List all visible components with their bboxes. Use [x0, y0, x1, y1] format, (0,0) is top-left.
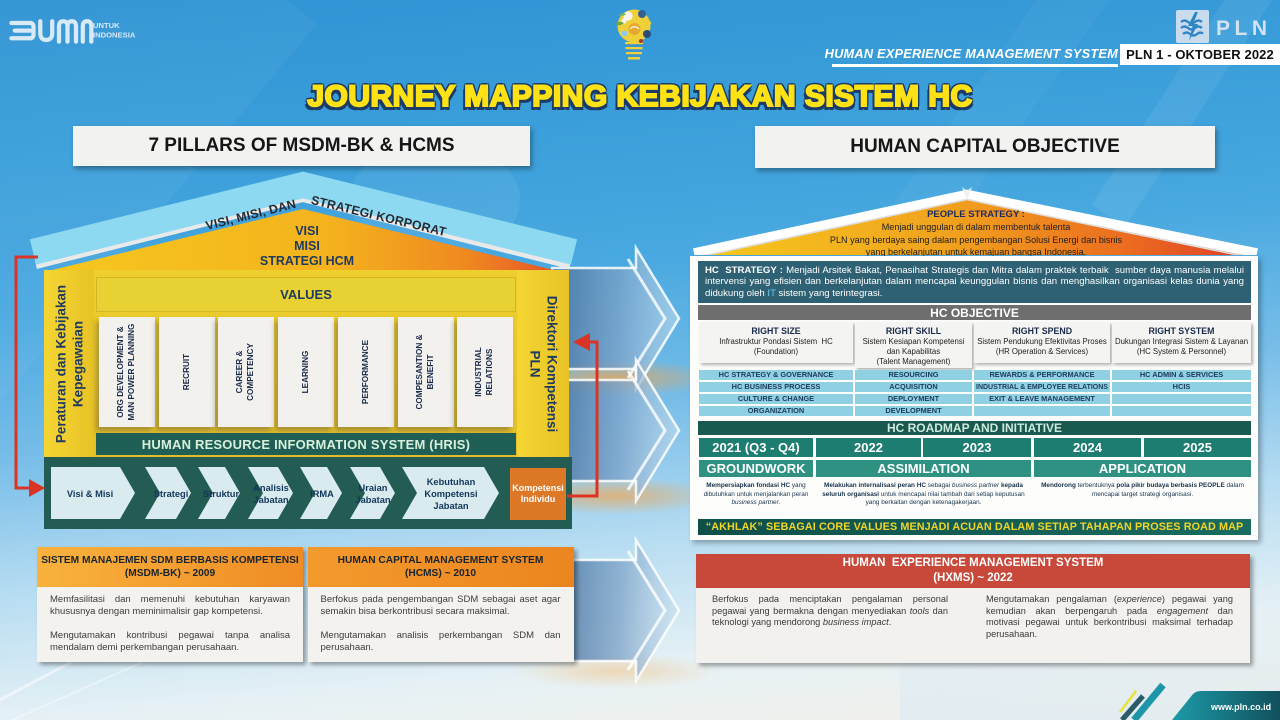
svg-text:www.pln.co.id: www.pln.co.id: [1210, 702, 1271, 712]
